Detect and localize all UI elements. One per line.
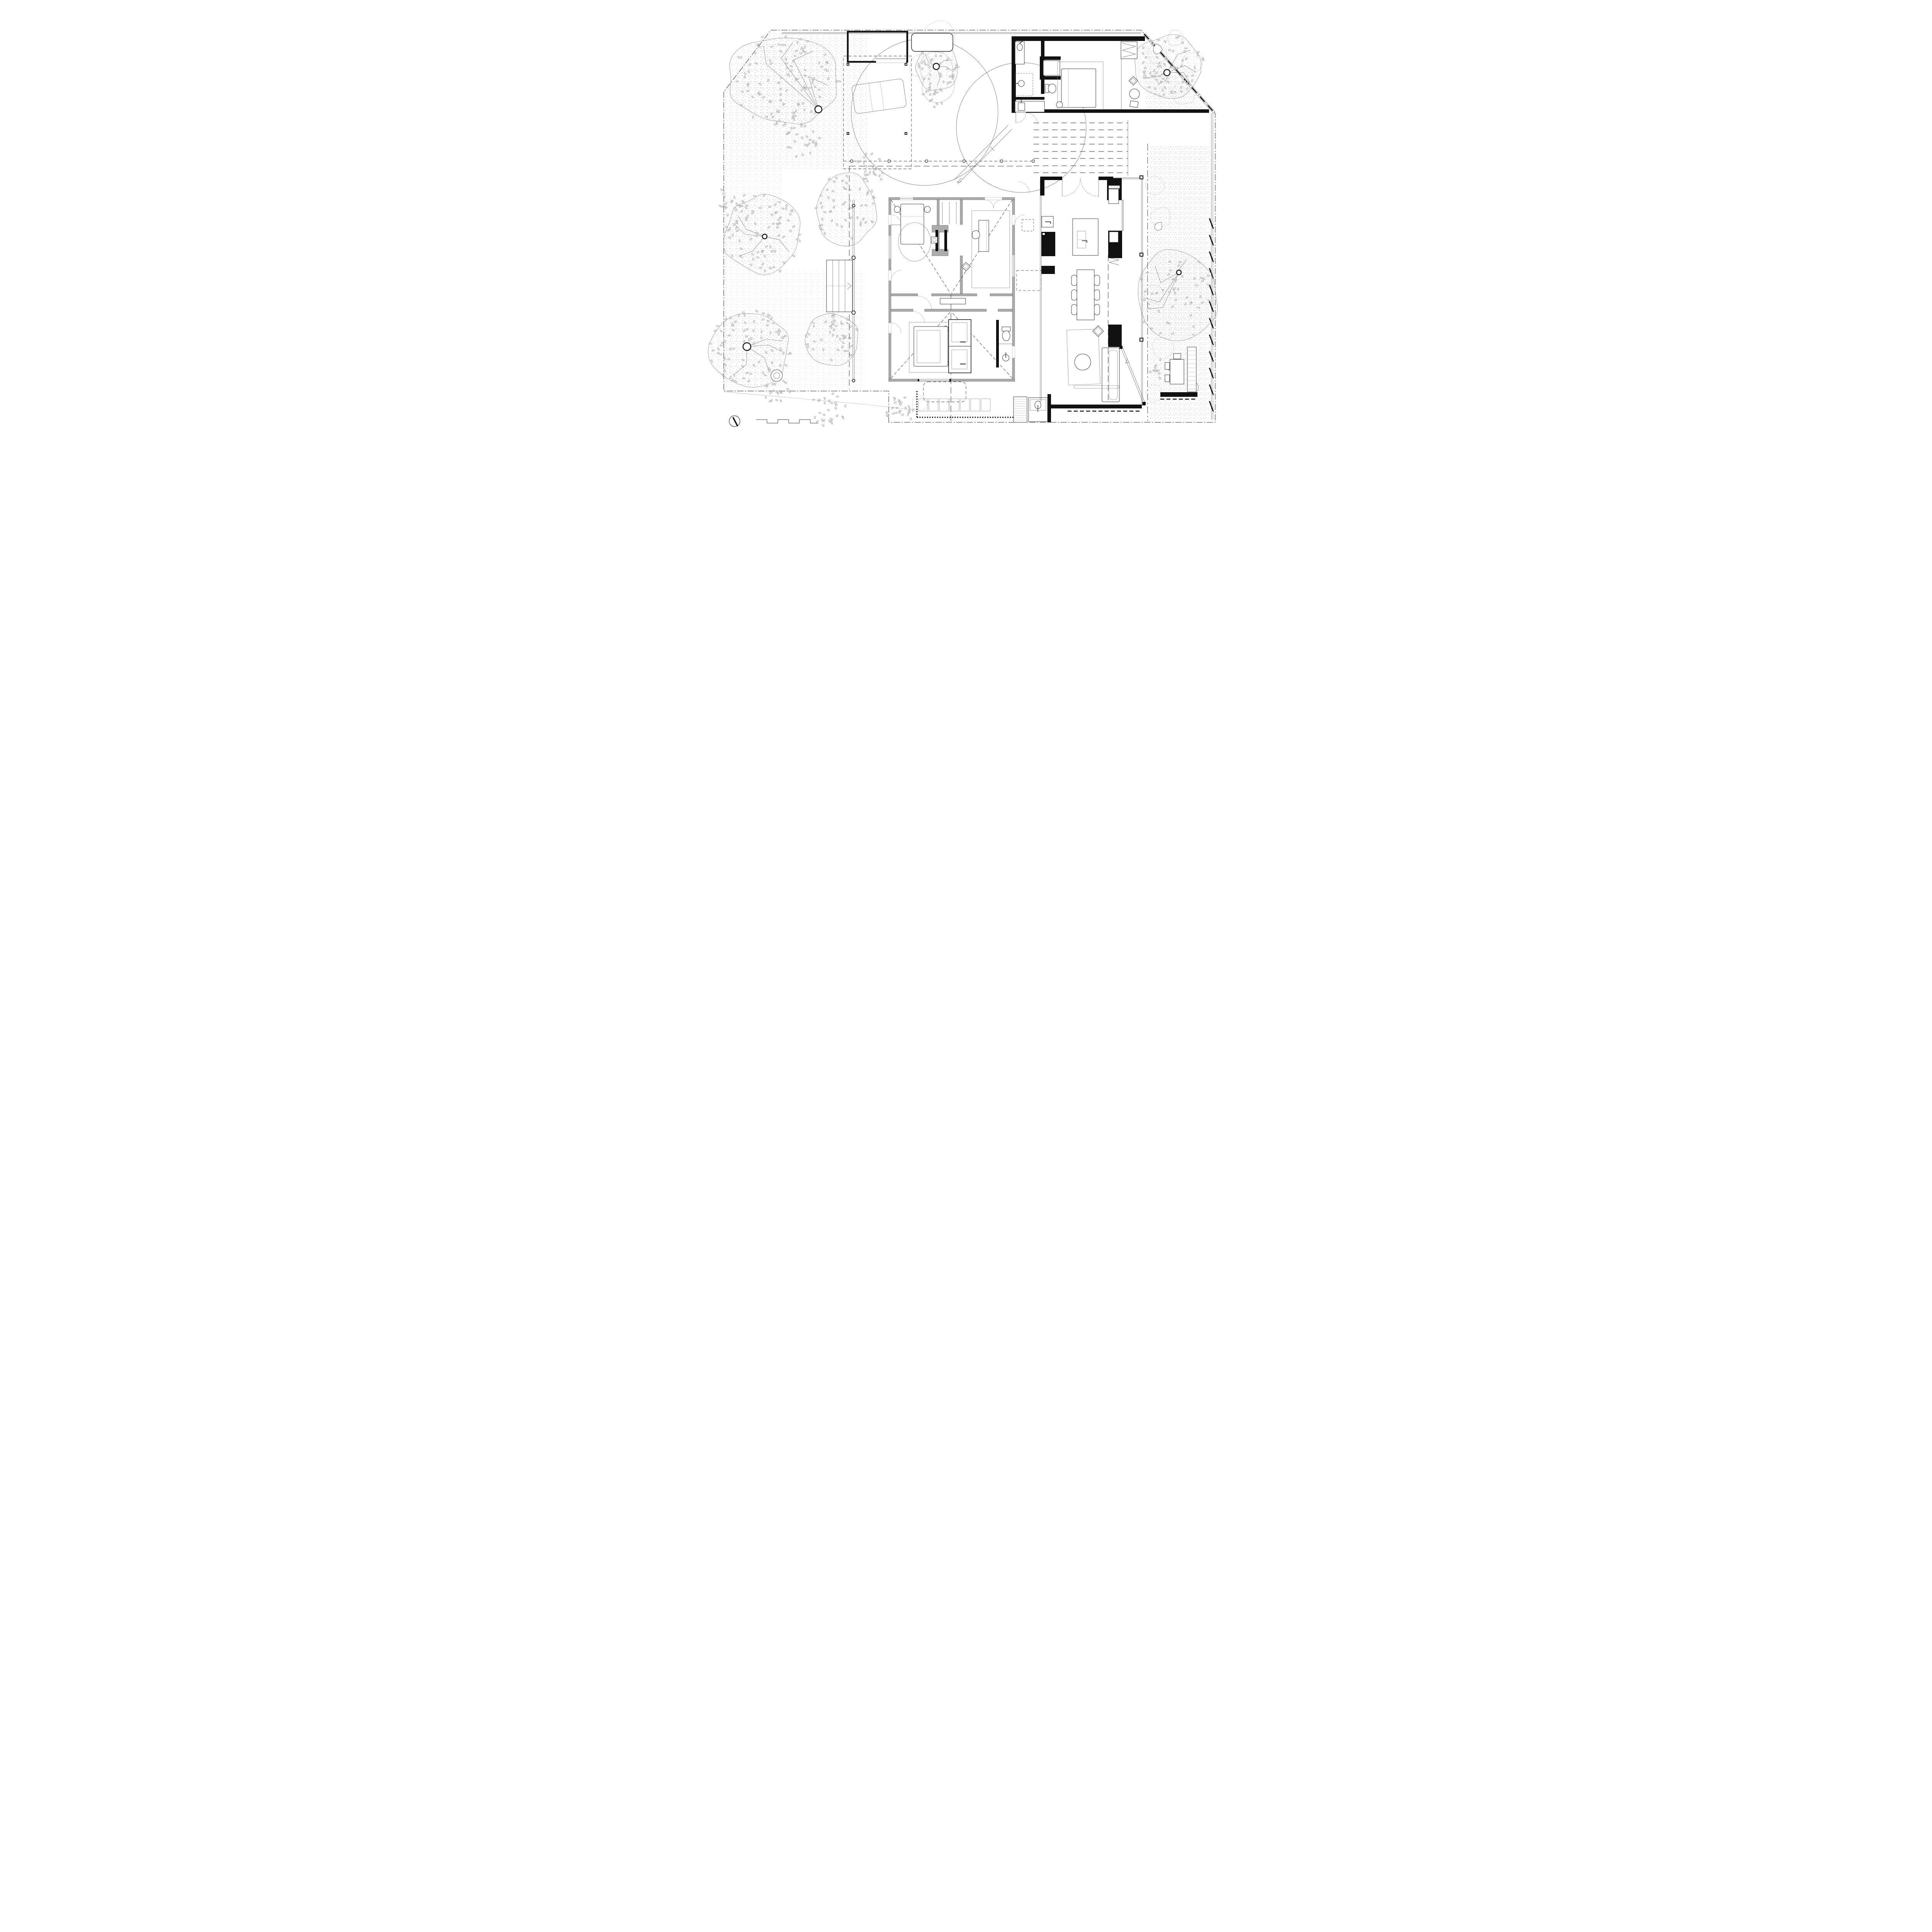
dining-set xyxy=(1071,270,1100,320)
leaf-icon xyxy=(734,196,735,199)
leaf-icon xyxy=(849,200,850,202)
leaf-icon xyxy=(830,210,832,213)
hall-bench xyxy=(940,298,966,304)
leaf-icon xyxy=(716,325,719,327)
leaf-icon xyxy=(712,350,715,351)
leaf-icon xyxy=(1149,371,1151,372)
leaf-icon xyxy=(809,87,811,88)
leaf-icon xyxy=(1174,292,1176,294)
leaf-icon xyxy=(860,221,861,224)
leaf-icon xyxy=(1162,78,1164,79)
washer xyxy=(1018,103,1025,111)
leaf-icon xyxy=(943,81,944,83)
leaf-icon xyxy=(1172,50,1174,53)
leaf-icon xyxy=(1143,299,1146,301)
bedside-table xyxy=(1056,102,1063,108)
kitchen-island xyxy=(1073,219,1098,255)
firebox xyxy=(931,237,937,243)
leaf-icon xyxy=(721,206,724,207)
leaf-icon xyxy=(782,103,785,104)
leaf-icon xyxy=(878,158,881,160)
leaf-icon xyxy=(764,270,765,272)
storage-block xyxy=(1041,232,1055,256)
leaf-icon xyxy=(859,188,861,190)
round-ottoman xyxy=(1075,354,1091,370)
leaf-icon xyxy=(863,161,865,164)
leaf-icon xyxy=(733,223,735,226)
desk-chair xyxy=(972,231,980,239)
leaf-icon xyxy=(722,374,724,376)
dining-table xyxy=(1077,270,1094,320)
drawing-sheet xyxy=(685,0,1247,437)
leaf-icon xyxy=(927,64,929,65)
desk xyxy=(979,220,989,252)
leaf-icon xyxy=(784,335,787,337)
leaf-icon xyxy=(741,91,743,92)
leaf-icon xyxy=(780,348,781,350)
leaf-icon xyxy=(786,134,789,135)
leaf-icon xyxy=(922,61,923,64)
leaf-icon xyxy=(804,109,805,111)
leaf-icon xyxy=(935,54,937,57)
outdoor-table xyxy=(1170,359,1184,384)
tree-trunk-icon xyxy=(1177,270,1181,275)
leaf-icon xyxy=(749,373,752,374)
leaf-icon xyxy=(1141,278,1142,281)
leaf-icon xyxy=(1176,37,1179,38)
leaf-icon xyxy=(823,211,826,213)
leaf-icon xyxy=(1158,39,1160,41)
leaf-icon xyxy=(744,314,745,317)
leaf-icon xyxy=(813,325,815,328)
boulder-icon xyxy=(771,370,782,381)
tv-joinery-block xyxy=(1108,325,1122,347)
bedroom-3 xyxy=(909,320,971,373)
tree-trunk-icon xyxy=(743,343,751,350)
leaf-icon xyxy=(871,190,873,193)
leaf-icon xyxy=(791,209,793,211)
outdoor-chair xyxy=(1165,375,1170,382)
leaf-icon xyxy=(747,215,748,218)
sofa xyxy=(1102,348,1119,402)
leaf-icon xyxy=(807,144,808,147)
site-floor-plan xyxy=(685,0,1247,437)
tree-trunk-icon xyxy=(1164,70,1170,76)
leaf-icon xyxy=(1185,75,1188,77)
leaf-icon xyxy=(753,342,754,345)
boardwalk-steps xyxy=(1187,347,1196,392)
leaf-icon xyxy=(728,335,731,336)
robe-shelf xyxy=(1043,61,1060,75)
outdoor-chair xyxy=(1165,362,1170,369)
leaf-icon xyxy=(922,94,925,95)
tree-trunk-icon xyxy=(815,106,822,113)
leaf-icon xyxy=(771,361,772,364)
leaf-icon xyxy=(846,318,848,321)
leaf-icon xyxy=(742,312,745,313)
basin xyxy=(1017,44,1022,51)
leaf-icon xyxy=(757,44,759,45)
leaf-icon xyxy=(803,48,804,51)
leaf-icon xyxy=(786,204,787,207)
leaf-icon xyxy=(777,392,779,395)
leaf-icon xyxy=(804,145,807,146)
leaf-icon xyxy=(796,110,797,112)
leaf-icon xyxy=(781,44,783,45)
leaf-icon xyxy=(849,326,852,328)
leaf-icon xyxy=(794,115,797,117)
leaf-icon xyxy=(1148,87,1151,88)
leaf-icon xyxy=(1179,262,1182,263)
tree-trunk-icon xyxy=(762,234,767,239)
toilet xyxy=(1045,84,1056,93)
leaf-icon xyxy=(812,349,814,350)
outdoor-bath xyxy=(1029,394,1051,422)
leaf-icon xyxy=(777,223,780,224)
leaf-icon xyxy=(910,418,912,420)
leaf-icon xyxy=(1143,71,1146,72)
leaf-icon xyxy=(939,55,942,56)
leaf-icon xyxy=(721,342,724,344)
deck-stairs xyxy=(1014,397,1027,422)
leaf-icon xyxy=(872,203,874,204)
leaf-icon xyxy=(907,413,908,416)
leaf-icon xyxy=(923,60,925,63)
leaf-icon xyxy=(813,130,814,133)
leaf-icon xyxy=(797,103,799,104)
leaf-icon xyxy=(736,81,738,82)
side-table xyxy=(1130,101,1138,108)
leaf-icon xyxy=(820,195,823,196)
leaf-icon xyxy=(825,69,827,70)
leaf-icon xyxy=(1156,369,1158,372)
leaf-icon xyxy=(826,70,829,72)
leaf-icon xyxy=(832,334,834,337)
leaf-icon xyxy=(793,127,796,129)
leaf-icon xyxy=(894,402,896,403)
leaf-icon xyxy=(863,157,866,158)
leaf-icon xyxy=(841,323,844,325)
leaf-icon xyxy=(1185,48,1187,49)
toilet xyxy=(1002,331,1010,341)
car-parked xyxy=(912,33,953,51)
leaf-icon xyxy=(895,412,897,414)
window-mullion xyxy=(1122,200,1123,231)
leaf-icon xyxy=(836,396,839,397)
wardrobe xyxy=(1121,42,1137,59)
tree-trunk-icon xyxy=(933,63,939,70)
ottoman xyxy=(1129,89,1139,99)
leaf-icon xyxy=(744,76,745,78)
leaf-icon xyxy=(949,82,952,83)
leaf-icon xyxy=(804,75,806,77)
leaf-icon xyxy=(1168,291,1171,293)
leaf-icon xyxy=(901,414,904,415)
leaf-icon xyxy=(793,60,794,63)
leaf-icon xyxy=(1177,288,1179,291)
cistern xyxy=(1002,327,1010,331)
shower-rose-icon xyxy=(1018,80,1024,87)
leaf-icon xyxy=(762,250,764,253)
tree-south-deck xyxy=(805,313,858,365)
leaf-icon xyxy=(813,140,814,143)
bed xyxy=(1061,69,1096,107)
